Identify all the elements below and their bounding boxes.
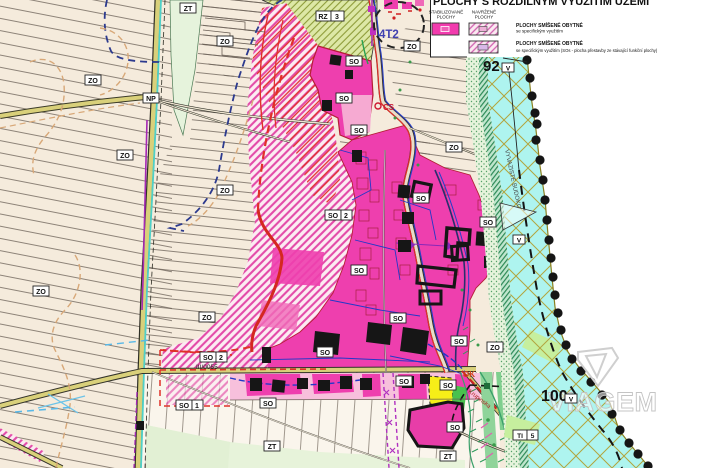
svg-text:SO: SO <box>354 128 365 135</box>
svg-text:ZO: ZO <box>220 39 230 46</box>
svg-text:5: 5 <box>531 433 535 440</box>
svg-text:ZO: ZO <box>120 153 130 160</box>
svg-text:ZO: ZO <box>220 188 230 195</box>
svg-text:se specifickým využitím: se specifickým využitím <box>516 29 563 34</box>
svg-text:SO: SO <box>483 220 494 227</box>
svg-text:PLOCHY SMÍŠENÉ OBYTNÉ: PLOCHY SMÍŠENÉ OBYTNÉ <box>516 39 584 47</box>
svg-text:ZO: ZO <box>88 78 98 85</box>
svg-text:SO: SO <box>263 401 274 408</box>
svg-text:4T2: 4T2 <box>379 29 399 41</box>
svg-text:ZO: ZO <box>407 44 417 51</box>
svg-text:SO: SO <box>416 196 427 203</box>
svg-text:TI: TI <box>517 433 523 440</box>
svg-text:NP: NP <box>146 96 156 103</box>
svg-text:92: 92 <box>483 58 500 75</box>
svg-text:SO: SO <box>349 59 360 66</box>
svg-text:SO: SO <box>454 339 465 346</box>
svg-text:PLOCHY: PLOCHY <box>475 15 494 20</box>
svg-text:V: V <box>506 66 511 73</box>
svg-text:III/0055: III/0055 <box>196 364 218 371</box>
svg-text:SO: SO <box>443 383 454 390</box>
svg-text:CS: CS <box>383 103 395 112</box>
svg-text:ZO: ZO <box>490 345 500 352</box>
svg-text:SO: SO <box>393 316 404 323</box>
svg-text:ZO: ZO <box>202 315 212 322</box>
svg-text:2: 2 <box>219 355 223 362</box>
svg-text:2: 2 <box>344 213 348 220</box>
svg-text:SO: SO <box>354 268 365 275</box>
svg-text:SO: SO <box>328 213 339 220</box>
svg-text:SO: SO <box>320 350 331 357</box>
svg-text:ZO: ZO <box>36 289 46 296</box>
svg-text:SO: SO <box>339 96 350 103</box>
svg-text:OK: OK <box>463 370 475 379</box>
svg-text:ZT: ZT <box>184 6 193 13</box>
svg-text:PLOCHY S ROZDÍLNÝM VYUŽITÍM ÚZ: PLOCHY S ROZDÍLNÝM VYUŽITÍM ÚZEMÍ <box>433 0 650 8</box>
svg-text:SO: SO <box>203 355 214 362</box>
svg-text:SO: SO <box>399 379 410 386</box>
svg-text:SO: SO <box>450 425 461 432</box>
svg-text:1: 1 <box>195 403 199 410</box>
svg-text:se specifickým využitím (SOs -: se specifickým využitím (SOs - plocha př… <box>516 48 658 53</box>
svg-text:V: V <box>517 238 522 245</box>
svg-text:ZO: ZO <box>449 145 459 152</box>
svg-text:SO: SO <box>179 403 190 410</box>
svg-text:RZ: RZ <box>318 14 328 21</box>
svg-text:PLOCHY: PLOCHY <box>437 15 456 20</box>
svg-text:V: V <box>569 397 574 404</box>
svg-text:ZT: ZT <box>444 454 453 461</box>
svg-text:100: 100 <box>541 388 568 405</box>
svg-text:NAVRŽENÉ: NAVRŽENÉ <box>472 8 496 15</box>
svg-text:3: 3 <box>335 14 339 21</box>
svg-text:ZT: ZT <box>268 444 277 451</box>
